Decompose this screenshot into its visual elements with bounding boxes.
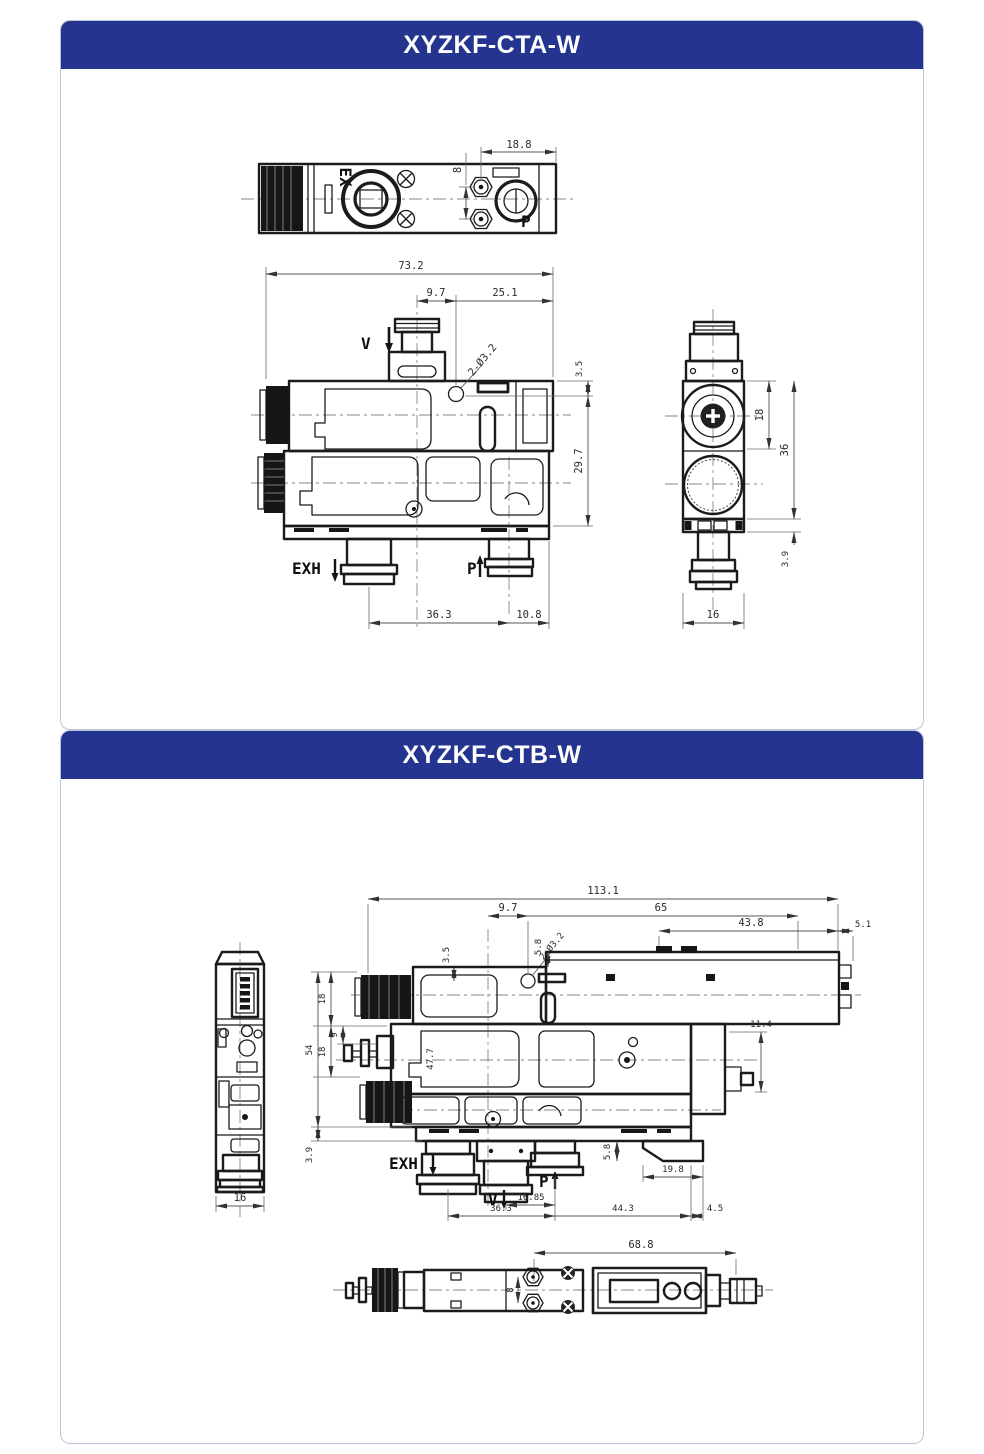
cta-front-view: 73.2 9.7 25.1 V 2-Ø3.2: [251, 260, 593, 629]
port-label-exh: EXH: [292, 559, 321, 578]
phillips-screw-icon: [701, 404, 726, 429]
port-label-p: P: [467, 559, 477, 578]
panel-cta-title: XYZKF-CTA-W: [403, 31, 580, 60]
ctb-drawing: 16 113.1 9.7 65 43.8 5.1 3.5: [61, 779, 922, 1443]
dim-5.8-foot: 5.8: [603, 1144, 613, 1160]
dim-18.8: 18.8: [506, 139, 531, 151]
dim-44.3: 44.3: [612, 1204, 634, 1214]
down-arrow-icon: [385, 327, 393, 353]
mounting-bracket: [643, 1141, 703, 1161]
dim-29.7: 29.7: [573, 448, 585, 473]
dim-16: 16: [707, 609, 720, 621]
ctb-front-view: 113.1 9.7 65 43.8 5.1 3.5 5.8 2-Ø3.2: [305, 885, 871, 1221]
dim-10.8: 10.8: [516, 609, 541, 621]
digital-display-module: [593, 1268, 706, 1313]
dim-73.2: 73.2: [398, 260, 423, 272]
dim-9.7: 9.7: [499, 902, 518, 914]
down-arrow-icon: [332, 559, 339, 582]
port-label-exh: EXH: [389, 1154, 418, 1173]
dim-9.7: 9.7: [427, 287, 446, 299]
dim-4.5: 4.5: [707, 1204, 723, 1214]
dim-18: 18: [754, 409, 766, 422]
connector-pins-icon: [240, 977, 250, 1010]
dim-8: 8: [452, 167, 464, 173]
cta-top-view: EX P: [241, 139, 577, 233]
hole-callout: 2-Ø3.2: [466, 342, 500, 379]
dim-19.8: 19.8: [662, 1165, 684, 1175]
dim-47.7: 47.7: [426, 1048, 436, 1070]
ctb-side-view: 16: [216, 942, 264, 1217]
display-window: [610, 1280, 658, 1302]
dim-3.9: 3.9: [781, 551, 791, 567]
dim-9: 9: [330, 1032, 340, 1037]
dim-54: 54: [305, 1045, 315, 1056]
cta-drawing: EX P: [61, 69, 922, 729]
panel-cta: XYZKF-CTA-W EX: [60, 20, 924, 730]
dim-25.1: 25.1: [492, 287, 517, 299]
panel-ctb-title: XYZKF-CTB-W: [402, 741, 581, 770]
dim-16.85: 16.85: [517, 1193, 544, 1203]
panel-ctb-title-bar: XYZKF-CTB-W: [61, 731, 923, 779]
port-label-p: P: [539, 1172, 549, 1191]
phillips-screw-icon: [561, 1266, 575, 1280]
dim-18-mid: 18: [318, 1047, 328, 1058]
panel-cta-title-bar: XYZKF-CTA-W: [61, 21, 923, 69]
dim-8: 8: [506, 1287, 516, 1292]
ctb-bottom-view: 68.8 8: [333, 1239, 773, 1314]
dim-113.1: 113.1: [587, 885, 619, 897]
dim-36.3: 36.3: [426, 609, 451, 621]
dim-3.5: 3.5: [575, 361, 585, 377]
panel-ctb: XYZKF-CTB-W: [60, 730, 924, 1444]
hex-fitting-icon: [470, 210, 492, 229]
phillips-screw-icon: [398, 171, 415, 188]
phillips-screw-icon: [561, 1300, 575, 1314]
hex-fitting-icon: [470, 178, 492, 197]
phillips-screw-icon: [398, 211, 415, 228]
port-label-p: P: [521, 212, 531, 231]
dim-68.8: 68.8: [628, 1239, 653, 1251]
dim-3.9: 3.9: [305, 1147, 315, 1163]
dim-5.1: 5.1: [855, 920, 871, 930]
dim-3.5: 3.5: [442, 947, 452, 963]
dim-36.3: 36.3: [490, 1204, 512, 1214]
display-button: [664, 1283, 680, 1299]
cable-connector: [730, 1279, 762, 1303]
dim-18-upper: 18: [318, 994, 328, 1005]
up-arrow-icon: [477, 555, 484, 577]
hex-fitting-icon: [523, 1268, 543, 1285]
manual-override-knob: [344, 1036, 393, 1068]
down-arrow-icon: [430, 1155, 437, 1175]
hex-fitting-icon: [523, 1294, 543, 1311]
dim-65: 65: [655, 902, 668, 914]
port-label-v: V: [361, 334, 371, 353]
dim-43.8: 43.8: [738, 917, 763, 929]
dim-36: 36: [779, 444, 791, 457]
display-button: [685, 1283, 701, 1299]
cta-side-view: 18 36 3.9 16: [665, 309, 801, 629]
dim-16: 16: [234, 1192, 247, 1204]
dim-11.4: 11.4: [750, 1020, 772, 1030]
